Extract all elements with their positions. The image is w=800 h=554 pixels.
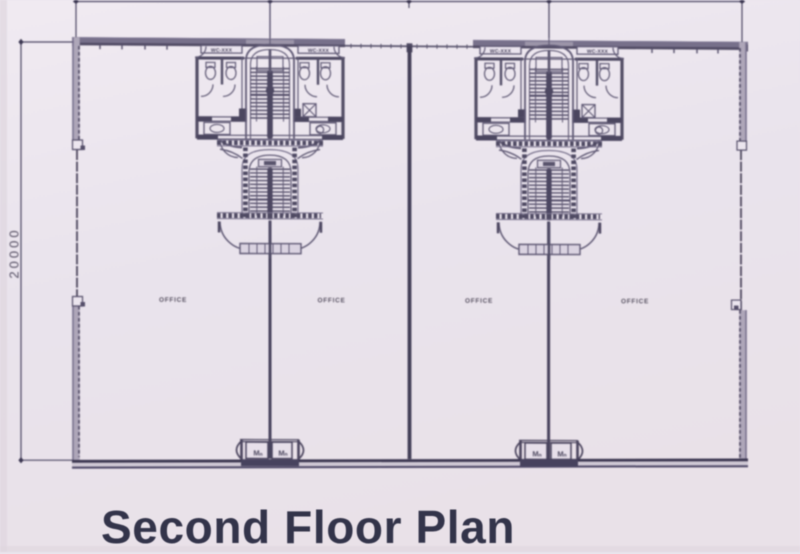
svg-text:OFFICE: OFFICE <box>159 297 187 304</box>
svg-text:20000: 20000 <box>7 227 22 278</box>
svg-text:OFFICE: OFFICE <box>465 298 493 305</box>
svg-text:OFFICE: OFFICE <box>621 298 649 305</box>
svg-text:OFFICE: OFFICE <box>317 297 345 304</box>
